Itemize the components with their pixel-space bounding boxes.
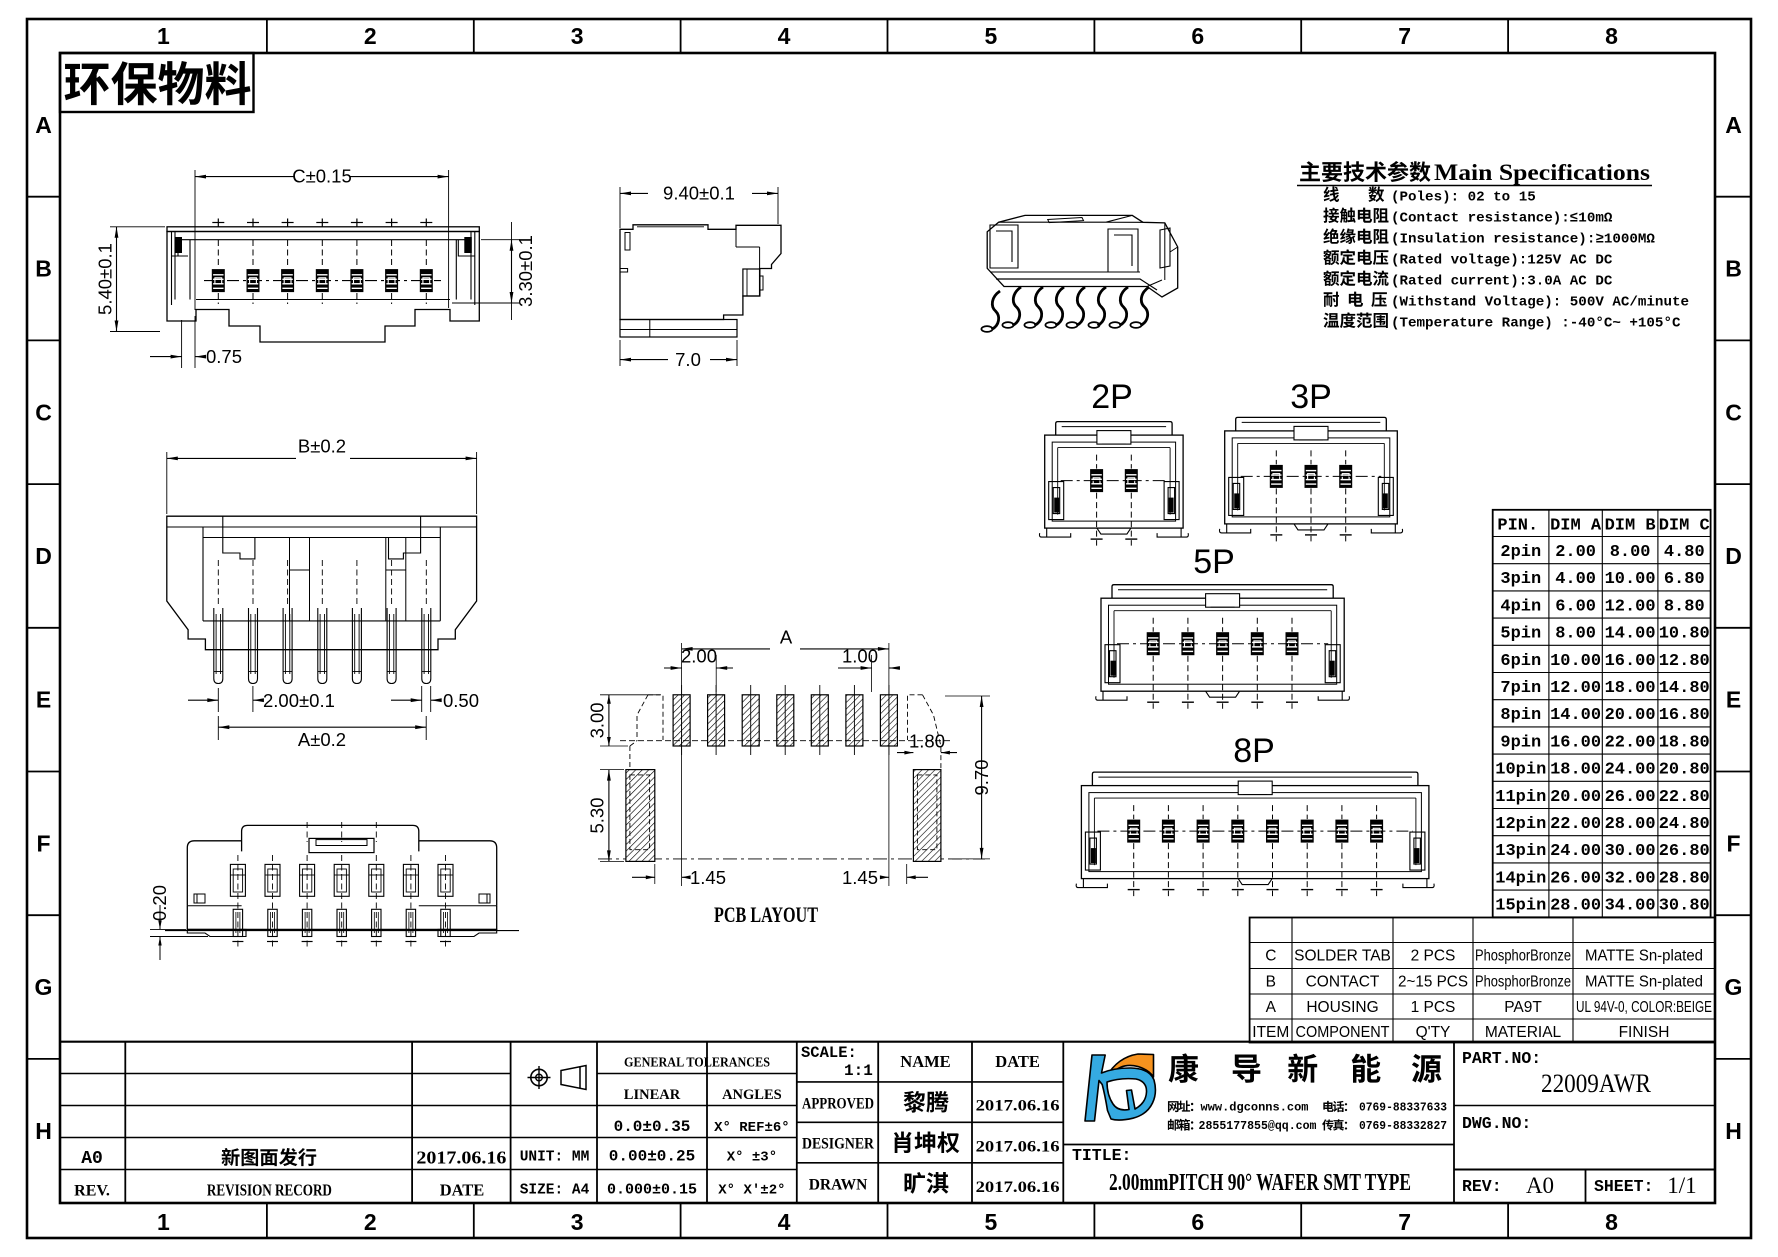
svg-text:APPROVED: APPROVED [802,1096,874,1113]
svg-text:F: F [36,830,50,856]
svg-text:32.00: 32.00 [1605,869,1656,888]
svg-text:12.80: 12.80 [1659,652,1710,671]
svg-text:2.00: 2.00 [1555,543,1596,562]
svg-text:10.80: 10.80 [1659,625,1710,644]
svg-text:SHEET:: SHEET: [1594,1177,1653,1196]
svg-text:X° X'±2°: X° X'±2° [718,1183,785,1199]
svg-text:X° ±3°: X° ±3° [727,1150,777,1166]
svg-text:5P: 5P [1193,543,1235,581]
svg-text:A±0.2: A±0.2 [298,729,346,750]
svg-text:1/1: 1/1 [1667,1173,1696,1198]
svg-text:14pin: 14pin [1495,869,1546,888]
svg-text:22.00: 22.00 [1605,733,1656,752]
svg-text:2: 2 [364,1209,377,1235]
svg-text:(Insulation resistance):≥1000M: (Insulation resistance):≥1000MΩ [1391,232,1655,248]
svg-text:A0: A0 [1526,1173,1554,1198]
svg-text:FINISH: FINISH [1619,1024,1670,1041]
svg-text:16.00: 16.00 [1605,652,1656,671]
svg-text:5.40±0.1: 5.40±0.1 [95,243,116,315]
svg-text:4.80: 4.80 [1664,543,1705,562]
svg-text:0.20: 0.20 [149,885,170,921]
svg-text:A: A [35,112,52,138]
svg-text:14.80: 14.80 [1659,679,1710,698]
svg-text:8: 8 [1605,1209,1618,1235]
svg-text:1: 1 [157,23,170,49]
svg-text:3.00: 3.00 [587,702,608,738]
svg-text:5: 5 [985,23,998,49]
svg-text:7: 7 [1398,23,1411,49]
svg-text:9.70: 9.70 [971,759,992,795]
svg-text:22009AWR: 22009AWR [1541,1069,1652,1098]
svg-text:2.00mmPITCH 90° WAFER SMT TYPE: 2.00mmPITCH 90° WAFER SMT TYPE [1109,1170,1411,1196]
svg-text:SCALE:: SCALE: [801,1044,857,1062]
svg-text:(Rated voltage):125V AC DC: (Rated voltage):125V AC DC [1391,253,1613,269]
svg-text:10pin: 10pin [1495,761,1546,780]
svg-text:18.00: 18.00 [1550,761,1601,780]
svg-text:7: 7 [1398,1209,1411,1235]
svg-text:10.00: 10.00 [1605,570,1656,589]
svg-text:7pin: 7pin [1500,679,1541,698]
svg-text:REVISION RECORD: REVISION RECORD [207,1181,332,1200]
svg-text:11pin: 11pin [1495,788,1546,807]
svg-text:5pin: 5pin [1500,625,1541,644]
svg-text:20.00: 20.00 [1550,788,1601,807]
svg-text:2~15 PCS: 2~15 PCS [1398,974,1468,991]
svg-text:0.50: 0.50 [443,690,479,711]
svg-text:1.00: 1.00 [842,646,878,667]
svg-text:ANGLES: ANGLES [722,1087,782,1103]
svg-text:CONTACT: CONTACT [1306,974,1380,991]
svg-text:5: 5 [985,1209,998,1235]
svg-text:1.80: 1.80 [909,731,945,752]
svg-text:5.30: 5.30 [587,797,608,833]
svg-text:C: C [1265,948,1276,965]
svg-text:HOUSING: HOUSING [1306,999,1378,1016]
svg-text:30.00: 30.00 [1605,842,1656,861]
svg-text:26.80: 26.80 [1659,842,1710,861]
svg-text:12.00: 12.00 [1605,597,1656,616]
svg-text:8: 8 [1605,23,1618,49]
svg-text:26.00: 26.00 [1605,788,1656,807]
svg-text:2 PCS: 2 PCS [1411,948,1456,965]
svg-text:H: H [35,1118,52,1144]
svg-text:COMPONENT: COMPONENT [1296,1024,1390,1041]
svg-text:D: D [35,543,52,569]
svg-text:0769-88332827: 0769-88332827 [1359,1119,1447,1133]
svg-text:16.00: 16.00 [1550,733,1601,752]
svg-text:28.80: 28.80 [1659,869,1710,888]
svg-text:1.45: 1.45 [842,867,878,888]
svg-text:2: 2 [364,23,377,49]
svg-text:2017.06.16: 2017.06.16 [976,1139,1060,1156]
svg-text:2855177855@qq.com: 2855177855@qq.com [1199,1119,1317,1133]
svg-text:2017.06.16: 2017.06.16 [976,1098,1060,1115]
svg-text:DATE: DATE [440,1181,485,1200]
svg-text:B: B [35,256,52,282]
svg-text:E: E [1726,687,1741,713]
svg-text:9.40±0.1: 9.40±0.1 [663,183,735,204]
svg-text:B: B [1725,256,1742,282]
svg-text:NAME: NAME [900,1052,950,1071]
svg-text:PhosphorBronze: PhosphorBronze [1475,974,1571,991]
svg-text:1 PCS: 1 PCS [1411,999,1456,1016]
svg-text:7.0: 7.0 [675,349,701,370]
svg-text:(Rated current):3.0A AC DC: (Rated current):3.0A AC DC [1391,274,1613,290]
svg-text:8P: 8P [1233,732,1275,770]
svg-text:8.80: 8.80 [1664,597,1705,616]
svg-text:12.00: 12.00 [1550,679,1601,698]
svg-text:MATTE Sn-plated: MATTE Sn-plated [1585,948,1703,965]
svg-text:14.00: 14.00 [1550,706,1601,725]
svg-text:GENERAL TOLERANCES: GENERAL TOLERANCES [624,1056,770,1071]
svg-text:8.00: 8.00 [1610,543,1651,562]
svg-text:22.80: 22.80 [1659,788,1710,807]
svg-text:DIM A: DIM A [1550,516,1602,535]
svg-text:3P: 3P [1290,378,1332,416]
svg-text:2017.06.16: 2017.06.16 [416,1148,506,1168]
svg-text:UNIT: MM: UNIT: MM [520,1150,590,1166]
svg-text:18.80: 18.80 [1659,733,1710,752]
svg-text:34.00: 34.00 [1605,897,1656,916]
svg-text:9pin: 9pin [1500,733,1541,752]
svg-text:16.80: 16.80 [1659,706,1710,725]
svg-text:(Temperature Range) :-40°C~ +1: (Temperature Range) :-40°C~ +105°C [1391,316,1681,332]
svg-text:4: 4 [778,23,791,49]
svg-text:24.00: 24.00 [1605,761,1656,780]
svg-text:28.00: 28.00 [1605,815,1656,834]
svg-text:Q'TY: Q'TY [1416,1024,1451,1041]
svg-text:DESIGNER: DESIGNER [802,1136,875,1153]
svg-text:PIN.: PIN. [1497,516,1538,535]
svg-text:0.00±0.25: 0.00±0.25 [609,1148,695,1166]
svg-text:X° REF±6°: X° REF±6° [714,1120,790,1136]
svg-text:10.00: 10.00 [1550,652,1601,671]
svg-text:30.80: 30.80 [1659,897,1710,916]
svg-text:REV.: REV. [74,1183,110,1200]
svg-text:0.000±0.15: 0.000±0.15 [607,1182,697,1199]
svg-text:2017.06.16: 2017.06.16 [976,1179,1060,1196]
svg-text:C±0.15: C±0.15 [292,166,352,187]
svg-text:E: E [36,687,51,713]
svg-text:12pin: 12pin [1495,815,1546,834]
svg-text:(Withstand Voltage): 500V AC/m: (Withstand Voltage): 500V AC/minute [1391,295,1689,311]
svg-text:ITEM: ITEM [1252,1024,1289,1041]
svg-text:(Poles): 02 to 15: (Poles): 02 to 15 [1391,190,1536,206]
svg-text:A: A [1266,999,1277,1016]
svg-text:6: 6 [1191,1209,1204,1235]
svg-text:DRAWN: DRAWN [809,1177,868,1194]
svg-text:Main Specifications: Main Specifications [1434,160,1650,186]
svg-text:4: 4 [778,1209,791,1235]
svg-text:A: A [1725,112,1742,138]
svg-text:28.00: 28.00 [1550,897,1601,916]
svg-text:3: 3 [571,1209,584,1235]
svg-text:3.30±0.1: 3.30±0.1 [515,235,536,307]
svg-text:24.80: 24.80 [1659,815,1710,834]
svg-text:2.00±0.1: 2.00±0.1 [263,690,335,711]
svg-text:26.00: 26.00 [1550,869,1601,888]
svg-text:G: G [1725,974,1743,1000]
svg-text:0769-88337633: 0769-88337633 [1359,1101,1447,1115]
svg-text:B: B [1266,974,1276,991]
svg-text:REV:: REV: [1462,1177,1502,1196]
svg-text:DIM C: DIM C [1659,516,1710,535]
svg-text:2.00: 2.00 [681,646,717,667]
svg-text:SOLDER TAB: SOLDER TAB [1294,948,1391,965]
svg-text:MATTE Sn-plated: MATTE Sn-plated [1585,974,1703,991]
svg-text:DIM B: DIM B [1605,516,1656,535]
svg-text:A0: A0 [81,1149,103,1169]
svg-text:SIZE: A4: SIZE: A4 [520,1183,590,1199]
svg-text:PCB LAYOUT: PCB LAYOUT [714,902,818,927]
svg-text:G: G [35,974,53,1000]
svg-text:4pin: 4pin [1500,597,1541,616]
svg-text:8pin: 8pin [1500,706,1541,725]
svg-text:1: 1 [157,1209,170,1235]
svg-text:6.00: 6.00 [1555,597,1596,616]
svg-text:DWG.NO:: DWG.NO: [1462,1114,1531,1133]
svg-text:13pin: 13pin [1495,842,1546,861]
svg-text:TITLE:: TITLE: [1072,1146,1131,1165]
svg-text:6.80: 6.80 [1664,570,1705,589]
svg-text:B±0.2: B±0.2 [298,436,346,457]
svg-text:14.00: 14.00 [1605,625,1656,644]
svg-text:0.0±0.35: 0.0±0.35 [614,1118,691,1136]
svg-text:20.80: 20.80 [1659,761,1710,780]
svg-text:PA9T: PA9T [1504,999,1542,1016]
svg-text:C: C [35,399,52,425]
svg-text:24.00: 24.00 [1550,842,1601,861]
svg-text:H: H [1725,1118,1742,1144]
svg-text:D: D [1725,543,1742,569]
svg-text:8.00: 8.00 [1555,625,1596,644]
svg-text:3: 3 [571,23,584,49]
svg-text:1.45: 1.45 [690,867,726,888]
svg-text:1:1: 1:1 [844,1062,873,1080]
svg-text:UL 94V-0, COLOR:BEIGE: UL 94V-0, COLOR:BEIGE [1576,999,1712,1016]
svg-text:15pin: 15pin [1495,897,1546,916]
svg-text:C: C [1725,399,1742,425]
svg-text:0.75: 0.75 [206,346,242,367]
svg-text:20.00: 20.00 [1605,706,1656,725]
svg-text:PhosphorBronze: PhosphorBronze [1475,948,1571,965]
svg-text:www.dgconns.com: www.dgconns.com [1201,1101,1309,1115]
svg-text:A: A [780,627,793,648]
svg-text:(Contact resistance):≤10mΩ: (Contact resistance):≤10mΩ [1391,211,1613,227]
svg-text:6: 6 [1191,23,1204,49]
svg-text:22.00: 22.00 [1550,815,1601,834]
svg-text:4.00: 4.00 [1555,570,1596,589]
svg-text:LINEAR: LINEAR [624,1087,681,1103]
svg-text:2pin: 2pin [1500,543,1541,562]
svg-text:F: F [1726,830,1740,856]
svg-text:6pin: 6pin [1500,652,1541,671]
svg-text:2P: 2P [1091,378,1133,416]
svg-text:DATE: DATE [995,1052,1040,1071]
svg-text:3pin: 3pin [1500,570,1541,589]
svg-text:18.00: 18.00 [1605,679,1656,698]
svg-text:PART.NO:: PART.NO: [1462,1049,1541,1068]
svg-text:MATERIAL: MATERIAL [1485,1024,1562,1041]
